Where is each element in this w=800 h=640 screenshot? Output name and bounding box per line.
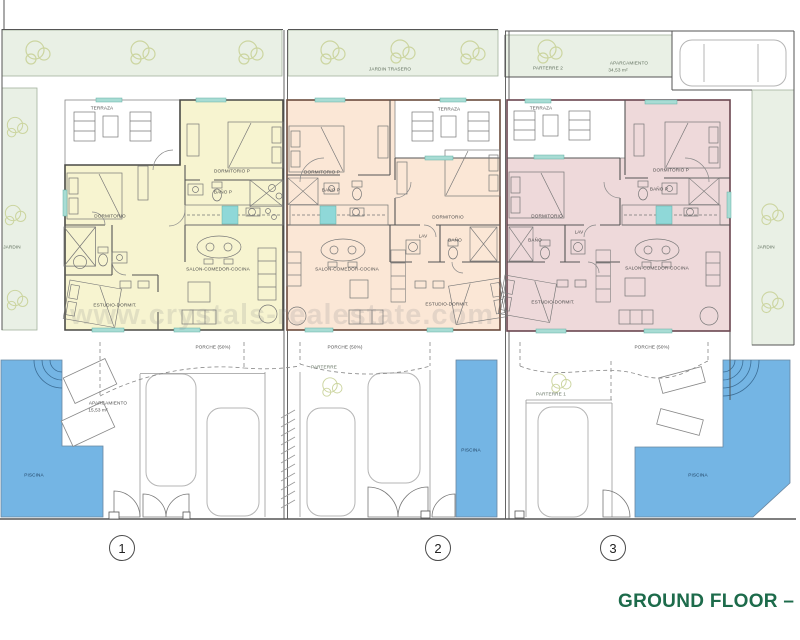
unit2-label-dormitorio: DORMITORIO — [432, 214, 463, 220]
unit-3-number-badge: 3 — [600, 535, 626, 561]
unit2-label-salon: SALON-COMEDOR-COCINA — [315, 266, 379, 272]
label-piscina-mid: PISCINA — [461, 447, 480, 453]
porch-dashed-lines — [100, 342, 708, 400]
unit1-label-dormitorio-p: DORMITORIO P — [214, 168, 250, 174]
unit1-label-terraza: TERRAZA — [91, 105, 114, 111]
unit-2-number-badge: 2 — [425, 535, 451, 561]
label-piscina-right: PISCINA — [688, 472, 707, 478]
watermark: www.crystals-realestate.com — [28, 299, 536, 332]
unit1-label-dormitorio: DORMITORIO — [94, 213, 125, 219]
unit-1-number: 1 — [118, 541, 125, 556]
sunbeds — [61, 359, 705, 447]
unit3-label-bano-p: BAÑO P — [650, 186, 668, 192]
label-parterre-mid: PARTERRE — [311, 364, 337, 370]
unit2-label-lav: LAV — [419, 233, 428, 239]
unit2-label-terraza: TERRAZA — [438, 106, 461, 112]
label-aparcamiento-left: APARCAMIENTO — [89, 400, 127, 406]
label-parterre-2: PARTERRE 2 — [533, 65, 563, 71]
label-aparcamiento-top: APARCAMIENTO — [610, 60, 648, 66]
unit3-label-dormitorio-p: DORMITORIO P — [653, 167, 689, 173]
unit2-label-dormitorio-p: DORMITORIO P — [304, 169, 340, 175]
unit-1-number-badge: 1 — [109, 535, 135, 561]
unit2-label-bano: BAÑO — [448, 237, 462, 243]
unit3-label-bano: BAÑO — [528, 237, 542, 243]
unit3-label-dormitorio: DORMITORIO — [531, 213, 562, 219]
floor-plan-page: JARDIN TRASERO PARTERRE 2 APARCAMIENTO 3… — [0, 0, 800, 640]
label-jardin-right: JARDIN — [757, 244, 775, 250]
unit3-label-porche: PORCHE (50%) — [634, 344, 669, 350]
pool-step-arcs — [34, 360, 759, 396]
label-aparcamiento-left-area: 15,53 m² — [88, 407, 107, 413]
unit2-label-porche: PORCHE (50%) — [327, 344, 362, 350]
unit-3-number: 3 — [609, 541, 616, 556]
unit3-label-terraza: TERRAZA — [530, 105, 553, 111]
label-piscina-left: PISCINA — [24, 472, 43, 478]
label-jardin-left: JARDIN — [3, 244, 21, 250]
unit3-label-lav: LAV — [575, 229, 584, 235]
pool-right — [635, 360, 790, 517]
label-jardin-trasero: JARDIN TRASERO — [369, 66, 411, 72]
unit1-label-salon: SALON-COMEDOR-COCINA — [186, 266, 250, 272]
unit3-label-salon: SALON-COMEDOR-COCINA — [625, 265, 689, 271]
gate-fans — [114, 487, 630, 517]
car-top-right — [680, 40, 786, 86]
label-parterre-1: PARTERRE 1 — [536, 391, 566, 397]
label-aparcamiento-top-area: 34,53 m² — [608, 67, 627, 73]
page-title: GROUND FLOOR – PLA — [618, 591, 800, 613]
unit-2-number: 2 — [434, 541, 441, 556]
unit2-label-bano-p: BAÑO P — [322, 187, 340, 193]
unit1-label-bano-p: BAÑO P — [214, 189, 232, 195]
unit1-label-porche: PORCHE (50%) — [195, 344, 230, 350]
pool-middle — [456, 360, 497, 517]
unit3-label-estudio: ESTUDIO-DORMIT. — [531, 299, 574, 305]
